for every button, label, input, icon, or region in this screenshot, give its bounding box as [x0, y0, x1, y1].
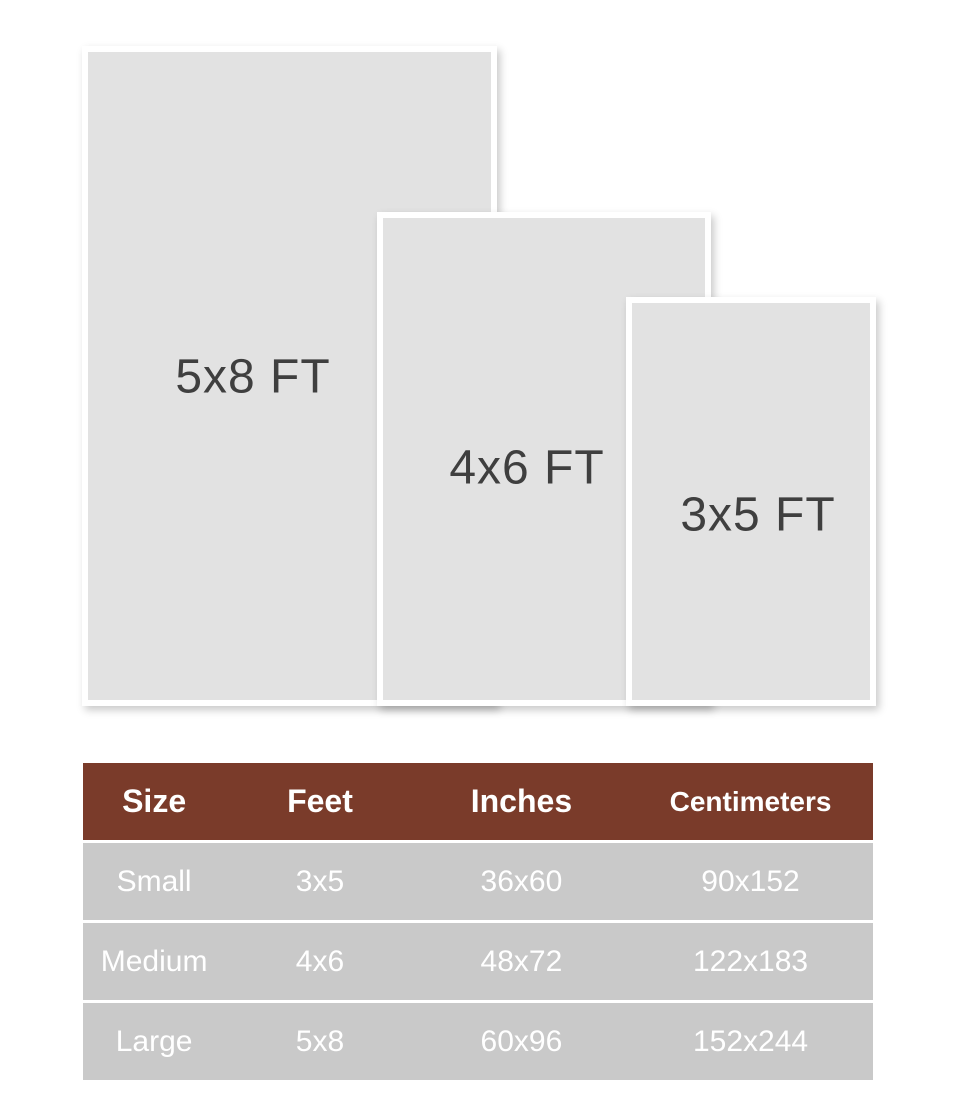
size-conversion-table: Size Feet Inches Centimeters Small 3x5 3…: [83, 763, 873, 1083]
cell-large-feet: 5x8: [225, 1003, 415, 1080]
cell-medium-inches: 48x72: [415, 923, 628, 1000]
cell-small-centimeters: 90x152: [628, 843, 873, 920]
cell-medium-centimeters: 122x183: [628, 923, 873, 1000]
header-cell-centimeters: Centimeters: [628, 763, 873, 840]
cell-large-size: Large: [83, 1003, 225, 1080]
cell-medium-feet: 4x6: [225, 923, 415, 1000]
rug-size-label-4x6: 4x6 FT: [449, 441, 604, 496]
cell-small-size: Small: [83, 843, 225, 920]
rug-rectangle-3x5: 3x5 FT: [626, 297, 876, 706]
cell-large-inches: 60x96: [415, 1003, 628, 1080]
rug-size-label-5x8: 5x8 FT: [175, 350, 330, 405]
table-header-row: Size Feet Inches Centimeters: [83, 763, 873, 840]
rug-size-chart-graphic: 5x8 FT 4x6 FT 3x5 FT Size Feet Inches Ce…: [0, 0, 960, 1120]
cell-large-centimeters: 152x244: [628, 1003, 873, 1080]
header-cell-size: Size: [83, 763, 225, 840]
table-row-medium: Medium 4x6 48x72 122x183: [83, 923, 873, 1000]
header-cell-inches: Inches: [415, 763, 628, 840]
table-row-large: Large 5x8 60x96 152x244: [83, 1003, 873, 1080]
cell-small-inches: 36x60: [415, 843, 628, 920]
cell-medium-size: Medium: [83, 923, 225, 1000]
table-row-small: Small 3x5 36x60 90x152: [83, 843, 873, 920]
header-cell-feet: Feet: [225, 763, 415, 840]
rug-size-label-3x5: 3x5 FT: [680, 488, 835, 543]
cell-small-feet: 3x5: [225, 843, 415, 920]
